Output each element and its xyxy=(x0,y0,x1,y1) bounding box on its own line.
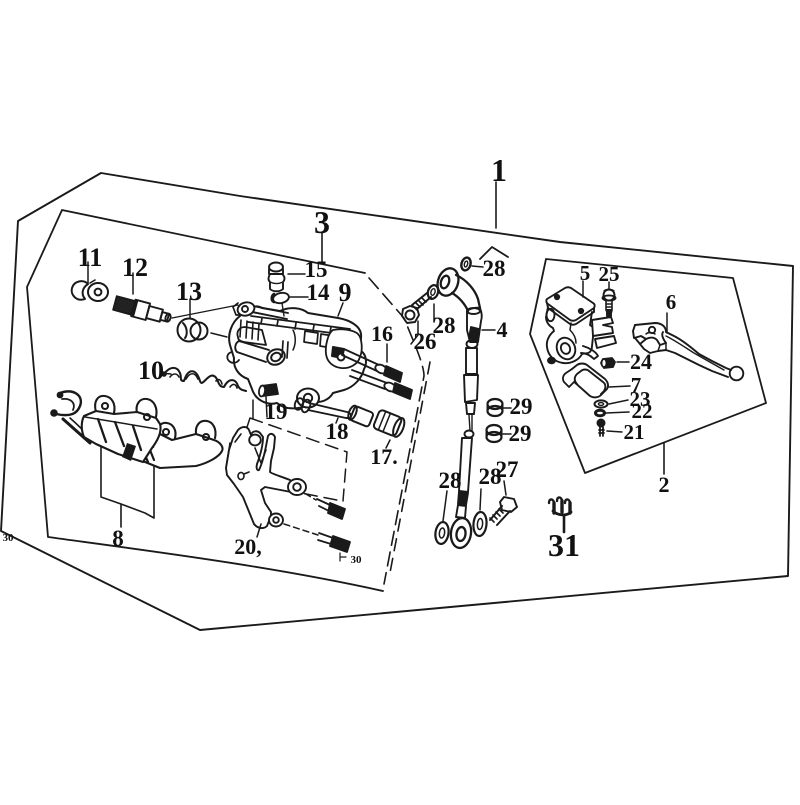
svg-text:19: 19 xyxy=(265,399,288,424)
svg-text:27: 27 xyxy=(496,457,519,482)
svg-text:28: 28 xyxy=(483,256,506,281)
svg-text:16: 16 xyxy=(371,321,393,346)
svg-text:2: 2 xyxy=(659,472,670,497)
svg-text:28: 28 xyxy=(439,468,462,493)
svg-text:4: 4 xyxy=(497,317,508,342)
svg-text:6: 6 xyxy=(666,290,677,314)
svg-text:13: 13 xyxy=(176,277,202,306)
svg-text:29: 29 xyxy=(509,421,532,446)
svg-text:20,: 20, xyxy=(234,534,262,559)
svg-text:1: 1 xyxy=(491,152,507,188)
svg-text:21: 21 xyxy=(624,420,645,444)
svg-text:17.: 17. xyxy=(370,444,398,469)
svg-text:10: 10 xyxy=(138,356,164,385)
svg-text:8: 8 xyxy=(112,526,124,551)
svg-text:12: 12 xyxy=(122,253,148,282)
svg-text:24: 24 xyxy=(630,349,652,374)
svg-text:14: 14 xyxy=(307,280,331,305)
svg-text:25: 25 xyxy=(599,262,620,286)
svg-text:5: 5 xyxy=(580,261,591,285)
svg-text:29: 29 xyxy=(510,394,533,419)
svg-text:11: 11 xyxy=(78,243,103,272)
svg-text:3: 3 xyxy=(314,204,330,240)
svg-text:26: 26 xyxy=(414,329,437,354)
svg-text:30: 30 xyxy=(351,554,363,566)
svg-text:9: 9 xyxy=(339,278,352,307)
svg-text:18: 18 xyxy=(326,419,349,444)
svg-text:30: 30 xyxy=(3,532,15,544)
svg-text:15: 15 xyxy=(305,257,328,282)
svg-text:31: 31 xyxy=(548,527,580,563)
